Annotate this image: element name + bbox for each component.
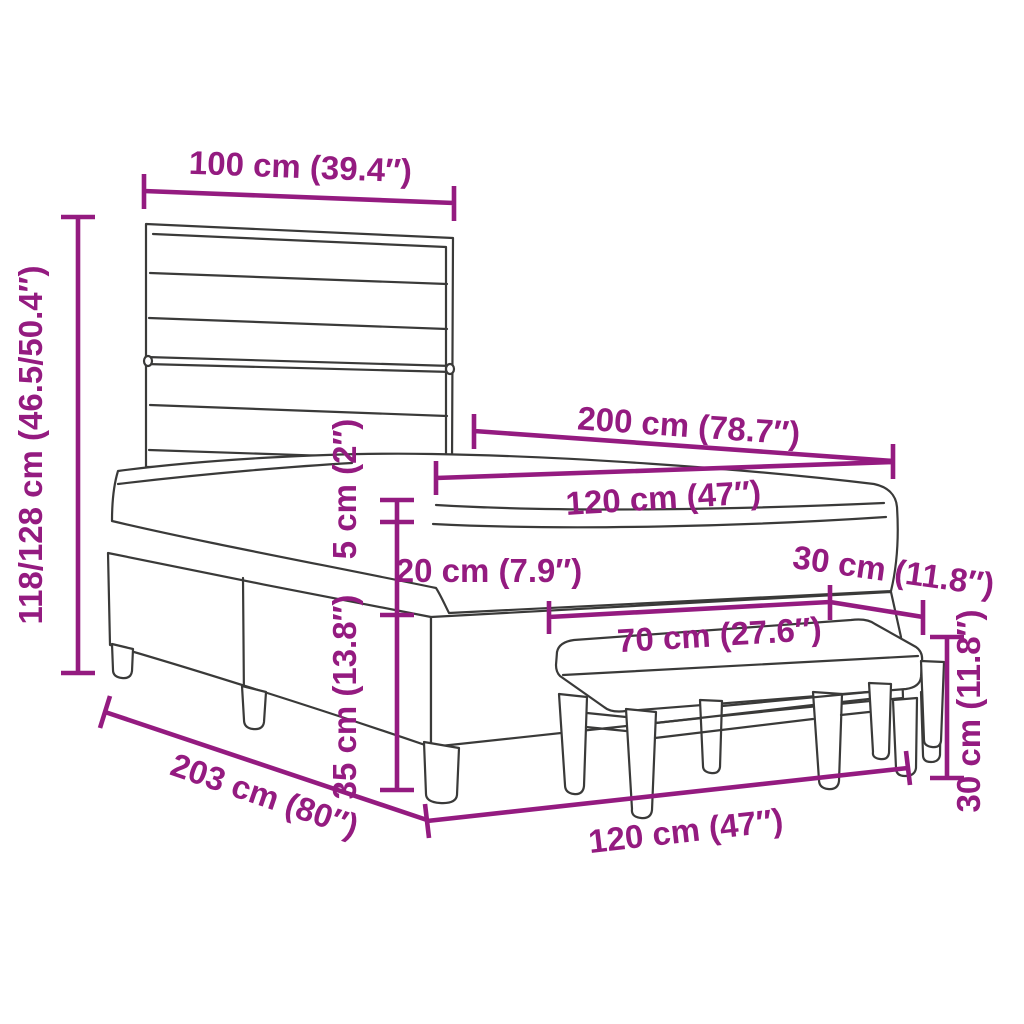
dim-label-bench-height: 30 cm (11.8″) [950, 610, 987, 813]
bed-leg [424, 742, 459, 803]
dim-headboard-width: 100 cm (39.4″) [144, 144, 454, 221]
dim-label-total-height: 118/128 cm (46.5/50.4″) [12, 266, 49, 625]
dim-label-mattress-length: 200 cm (78.7″) [576, 399, 801, 451]
bench-leg [626, 709, 656, 818]
dim-label-headboard-width: 100 cm (39.4″) [188, 144, 412, 190]
bed-leg [242, 686, 266, 729]
diagram-canvas: 100 cm (39.4″) 118/128 cm (46.5/50.4″) 2… [0, 0, 1024, 1024]
dim-line-total-height [61, 217, 95, 673]
headboard-rail-cap-left [144, 356, 152, 366]
dim-label-base-height: 35 cm (13.8″) [326, 595, 363, 800]
dim-total-height: 118/128 cm (46.5/50.4″) [12, 217, 95, 673]
headboard-rail-cap-right [446, 364, 454, 374]
bench-leg [559, 694, 587, 794]
bench-leg [869, 683, 891, 759]
headboard [144, 224, 454, 467]
bed-leg [112, 644, 133, 678]
bench-leg [700, 700, 722, 773]
bench-leg [921, 661, 944, 747]
headboard-outline [146, 224, 453, 467]
bed-dimension-diagram: 100 cm (39.4″) 118/128 cm (46.5/50.4″) 2… [0, 0, 1024, 1024]
bed-leg [893, 698, 917, 776]
dim-label-mattress-height: 20 cm (7.9″) [396, 552, 582, 589]
dim-label-topper-height: 5 cm (2″) [326, 419, 363, 560]
dim-label-bed-width: 120 cm (47″) [586, 801, 785, 860]
base-side-seam [243, 578, 244, 702]
base-side-face [108, 553, 431, 747]
